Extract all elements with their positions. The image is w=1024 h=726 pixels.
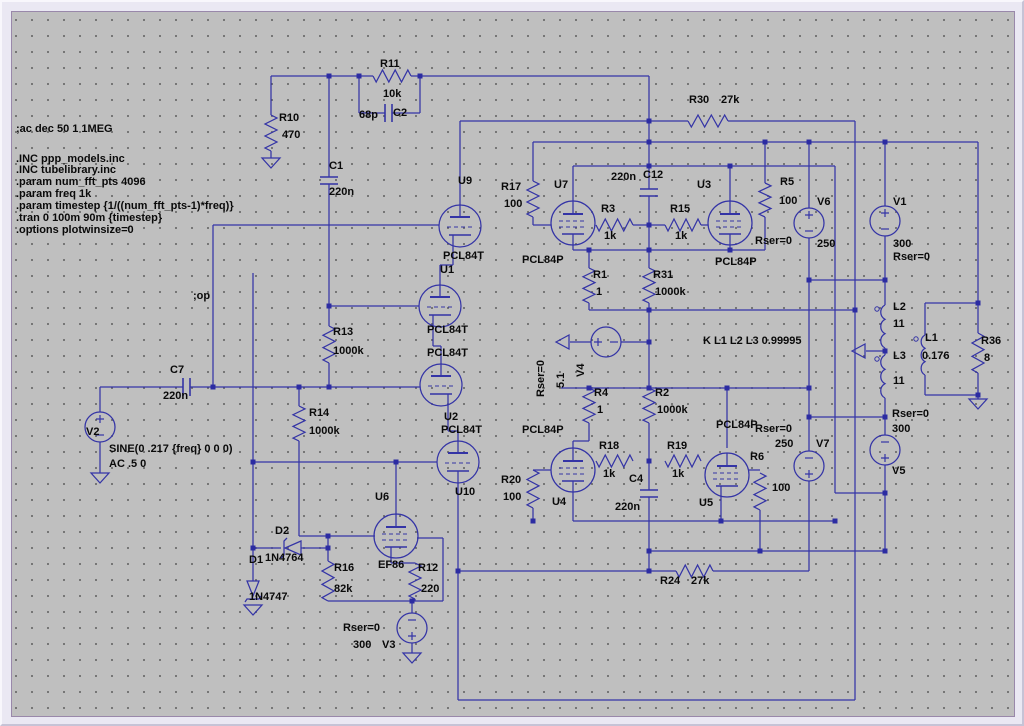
spice-directive-inc-tubelibrary[interactable]: .INC tubelibrary.inc <box>16 165 116 176</box>
component-label-L2[interactable]: L2 <box>893 302 906 313</box>
component-label-R14[interactable]: R14 <box>309 408 329 419</box>
component-label-U2-type[interactable]: PCL84T <box>427 348 468 359</box>
voltage-source-V4[interactable] <box>591 327 621 357</box>
component-label-V2-ac[interactable]: AC .5 0 <box>109 459 146 470</box>
component-label-V7-val[interactable]: 250 <box>775 439 793 450</box>
spice-directive-param-num-fft[interactable]: .param num_fft_pts 4096 <box>16 177 146 188</box>
junction-dot[interactable] <box>327 74 332 79</box>
ground-symbol[interactable] <box>969 399 987 409</box>
source-part <box>594 338 602 346</box>
voltage-source-V3[interactable] <box>397 613 427 643</box>
junction-dot[interactable] <box>883 549 888 554</box>
component-label-R11[interactable]: R11 <box>380 59 400 70</box>
junction-dot[interactable] <box>531 519 536 524</box>
source-part <box>408 632 416 640</box>
app-window: ;ac dec 50 1 1MEG.INC ppp_models.inc.INC… <box>0 0 1024 726</box>
junction-dot[interactable] <box>976 393 981 398</box>
tube-U9[interactable] <box>439 205 481 247</box>
component-label-U3-type[interactable]: PCL84P <box>715 257 757 268</box>
resistor-R17[interactable] <box>527 181 539 217</box>
component-label-R14-val[interactable]: 1000k <box>309 426 340 437</box>
component-label-V6-rser[interactable]: Rser=0 <box>755 236 792 247</box>
component-label-V4[interactable]: V4 <box>576 364 587 377</box>
capacitor-C12[interactable] <box>640 189 658 196</box>
junction-dot[interactable] <box>763 140 768 145</box>
component-label-R1-val[interactable]: 1 <box>596 287 602 298</box>
component-label-V2[interactable]: V2 <box>86 427 99 438</box>
spice-directive-param-timestep[interactable]: .param timestep {1/((num_fft_pts-1)*freq… <box>16 201 234 212</box>
component-label-U6[interactable]: U6 <box>375 492 389 503</box>
component-label-C1-val[interactable]: 220n <box>329 187 354 198</box>
junction-dot[interactable] <box>456 569 461 574</box>
component-label-V3[interactable]: V3 <box>382 640 395 651</box>
junction-dot[interactable] <box>647 164 652 169</box>
junction-dot[interactable] <box>647 459 652 464</box>
junction-dot[interactable] <box>647 119 652 124</box>
junction-dot[interactable] <box>728 248 733 253</box>
component-label-V5-val[interactable]: 300 <box>892 424 910 435</box>
junction-dot[interactable] <box>725 386 730 391</box>
component-label-U5[interactable]: U5 <box>699 498 713 509</box>
junction-dot[interactable] <box>833 519 838 524</box>
ground-symbol[interactable] <box>91 473 109 483</box>
component-label-U7[interactable]: U7 <box>554 180 568 191</box>
spice-directive-ac-analysis[interactable]: ;ac dec 50 1 1MEG <box>16 124 113 135</box>
component-label-U10[interactable]: U10 <box>455 487 475 498</box>
junction-dot[interactable] <box>327 385 332 390</box>
junction-dot[interactable] <box>976 301 981 306</box>
component-label-V6[interactable]: V6 <box>817 197 830 208</box>
phase-dot-L1[interactable] <box>914 337 918 341</box>
component-label-R11-val[interactable]: 10k <box>383 89 401 100</box>
phase-dot-L3[interactable] <box>875 357 879 361</box>
arrow-port[interactable] <box>556 335 569 349</box>
component-label-R18-val[interactable]: 1k <box>603 469 615 480</box>
junction-dot[interactable] <box>883 278 888 283</box>
resistor-R10[interactable] <box>265 115 277 151</box>
resistor-R19[interactable] <box>665 455 701 467</box>
component-label-R18[interactable]: R18 <box>599 441 619 452</box>
component-label-U4[interactable]: U4 <box>552 497 566 508</box>
source-part <box>805 470 813 478</box>
component-label-R4[interactable]: R4 <box>594 388 608 399</box>
component-label-R6-val[interactable]: 100 <box>772 483 790 494</box>
component-label-U9[interactable]: U9 <box>458 176 472 187</box>
junction-dot[interactable] <box>647 223 652 228</box>
junction-dot[interactable] <box>807 140 812 145</box>
component-label-R12[interactable]: R12 <box>418 563 438 574</box>
junction-dot[interactable] <box>327 304 332 309</box>
component-label-U7-type[interactable]: PCL84P <box>522 255 564 266</box>
component-label-C1[interactable]: C1 <box>329 161 343 172</box>
tube-U2[interactable] <box>420 364 462 406</box>
component-label-R17[interactable]: R17 <box>501 182 521 193</box>
component-label-C12[interactable]: C12 <box>643 170 663 181</box>
resistor-R30[interactable] <box>688 115 728 127</box>
component-label-R13-val[interactable]: 1000k <box>333 346 364 357</box>
component-label-R5-val[interactable]: 100 <box>779 196 797 207</box>
component-label-C12-val[interactable]: 220n <box>611 172 636 183</box>
component-label-V4-val[interactable]: 5.1 <box>556 373 567 388</box>
component-label-R3[interactable]: R3 <box>601 204 615 215</box>
component-label-R12-val[interactable]: 220 <box>421 584 439 595</box>
junction-dot[interactable] <box>326 546 331 551</box>
junction-dot[interactable] <box>883 140 888 145</box>
component-label-V4-rser[interactable]: Rser=0 <box>536 360 547 397</box>
junction-dot[interactable] <box>728 164 733 169</box>
component-label-L1-val[interactable]: 0.176 <box>922 351 950 362</box>
resistor-R14[interactable] <box>293 406 305 441</box>
junction-dot[interactable] <box>807 415 812 420</box>
component-label-U1-type[interactable]: PCL84T <box>427 325 468 336</box>
resistor-R11[interactable] <box>373 70 411 82</box>
component-label-R10-val[interactable]: 470 <box>282 130 300 141</box>
component-label-R30-val[interactable]: 27k <box>721 95 739 106</box>
component-label-R15-val[interactable]: 1k <box>675 231 687 242</box>
tube-U10[interactable] <box>437 441 479 483</box>
component-label-C4-val[interactable]: 220n <box>615 502 640 513</box>
junction-dot[interactable] <box>587 386 592 391</box>
resistor-R5[interactable] <box>759 183 771 217</box>
component-label-R15[interactable]: R15 <box>670 204 690 215</box>
junction-dot[interactable] <box>251 460 256 465</box>
voltage-source-V5[interactable] <box>870 435 900 465</box>
junction-dot[interactable] <box>647 386 652 391</box>
source-part <box>96 415 104 423</box>
junction-dot[interactable] <box>357 74 362 79</box>
component-label-D2-val[interactable]: 1N4764 <box>265 553 304 564</box>
component-label-R31-val[interactable]: 1000k <box>655 287 686 298</box>
component-label-R2-val[interactable]: 1000k <box>657 405 688 416</box>
component-label-R3-val[interactable]: 1k <box>604 231 616 242</box>
tube-U3[interactable] <box>708 201 752 245</box>
component-label-D1-val[interactable]: 1N4747 <box>249 592 288 603</box>
resistor-R16[interactable] <box>322 561 334 601</box>
component-label-V7-rser[interactable]: Rser=0 <box>755 424 792 435</box>
ground-symbol[interactable] <box>403 653 421 663</box>
component-label-U9-type[interactable]: PCL84T <box>443 251 484 262</box>
component-label-R36-val[interactable]: 8 <box>984 353 990 364</box>
component-label-R13[interactable]: R13 <box>333 327 353 338</box>
component-label-U2[interactable]: U2 <box>444 412 458 423</box>
component-label-R17-val[interactable]: 100 <box>504 199 522 210</box>
component-label-R20-val[interactable]: 100 <box>503 492 521 503</box>
component-label-L2-val[interactable]: 11 <box>893 319 905 330</box>
component-label-U3[interactable]: U3 <box>697 180 711 191</box>
component-label-R19[interactable]: R19 <box>667 441 687 452</box>
schematic-drawing <box>12 12 1016 718</box>
component-label-R36[interactable]: R36 <box>981 336 1001 347</box>
component-label-U6-type[interactable]: EF86 <box>378 560 404 571</box>
junction-dot[interactable] <box>883 415 888 420</box>
junction-dot[interactable] <box>418 74 423 79</box>
component-label-R5[interactable]: R5 <box>780 177 794 188</box>
voltage-source-V1[interactable] <box>870 206 900 236</box>
junction-dot[interactable] <box>719 519 724 524</box>
junction-dot[interactable] <box>297 385 302 390</box>
junction-dot[interactable] <box>587 248 592 253</box>
junction-dot[interactable] <box>807 278 812 283</box>
junction-dot[interactable] <box>647 569 652 574</box>
junction-dot[interactable] <box>647 308 652 313</box>
component-label-R20[interactable]: R20 <box>501 475 521 486</box>
junction-dot[interactable] <box>758 549 763 554</box>
junction-dot[interactable] <box>883 491 888 496</box>
component-label-L3[interactable]: L3 <box>893 351 906 362</box>
arrow-port[interactable] <box>852 344 865 358</box>
junction-dot[interactable] <box>410 599 415 604</box>
component-label-C2[interactable]: C2 <box>393 108 407 119</box>
component-label-U1[interactable]: U1 <box>440 265 454 276</box>
spice-directive-tran[interactable]: .tran 0 100m 90m {timestep} <box>16 213 162 224</box>
component-label-R4-val[interactable]: 1 <box>597 405 603 416</box>
capacitor-C1[interactable] <box>320 177 338 184</box>
component-label-V1[interactable]: V1 <box>893 197 906 208</box>
component-label-V5[interactable]: V5 <box>892 466 905 477</box>
component-label-L3-val[interactable]: 11 <box>893 376 905 387</box>
component-label-U10-type[interactable]: PCL84T <box>441 425 482 436</box>
source-part <box>881 454 889 462</box>
junction-dot[interactable] <box>807 386 812 391</box>
resistor-R18[interactable] <box>596 455 633 467</box>
junction-dot[interactable] <box>211 385 216 390</box>
spice-directive-param-freq[interactable]: .param freq 1k <box>16 189 91 200</box>
component-label-R31[interactable]: R31 <box>653 270 673 281</box>
component-label-R16-val[interactable]: 82k <box>334 584 352 595</box>
component-label-R2[interactable]: R2 <box>655 388 669 399</box>
component-label-U5-type[interactable]: PCL84P <box>716 420 758 431</box>
tube-U7[interactable] <box>551 201 595 245</box>
source-part <box>805 211 813 219</box>
component-label-V3-val[interactable]: 300 <box>353 640 371 651</box>
component-label-K-stmt[interactable]: K L1 L2 L3 0.99995 <box>703 336 801 347</box>
component-label-V7[interactable]: V7 <box>816 439 829 450</box>
junction-dot[interactable] <box>251 546 256 551</box>
component-label-V6-val[interactable]: 250 <box>817 239 835 250</box>
resistor-R6[interactable] <box>754 473 766 510</box>
ground-symbol[interactable] <box>244 605 262 615</box>
resistor-R20[interactable] <box>527 470 539 508</box>
component-label-R30[interactable]: R30 <box>689 95 709 106</box>
source-part <box>881 209 889 217</box>
inductor-L2[interactable] <box>881 305 885 348</box>
component-label-R24[interactable]: R24 <box>660 576 680 587</box>
inductor-L3[interactable] <box>881 355 885 398</box>
component-label-R6[interactable]: R6 <box>750 452 764 463</box>
component-label-C2-val[interactable]: 68p <box>359 110 378 121</box>
junction-dot[interactable] <box>853 308 858 313</box>
junction-dot[interactable] <box>647 248 652 253</box>
component-label-V1-val[interactable]: 300 <box>893 239 911 250</box>
junction-dot[interactable] <box>647 549 652 554</box>
component-label-R1[interactable]: R1 <box>593 270 607 281</box>
junction-dot[interactable] <box>394 460 399 465</box>
tube-U4[interactable] <box>551 448 595 492</box>
component-label-C7[interactable]: C7 <box>170 365 184 376</box>
junction-dot[interactable] <box>647 140 652 145</box>
ground-symbol[interactable] <box>262 158 280 168</box>
capacitor-C2[interactable] <box>385 104 392 122</box>
component-label-V5-rser[interactable]: Rser=0 <box>892 409 929 420</box>
spice-directive-options-plotwinsize[interactable]: .options plotwinsize=0 <box>16 225 134 236</box>
component-label-D2[interactable]: D2 <box>275 526 289 537</box>
component-label-R24-val[interactable]: 27k <box>691 576 709 587</box>
component-label-L1[interactable]: L1 <box>925 333 938 344</box>
resistor-R2[interactable] <box>643 388 655 423</box>
voltage-source-V6[interactable] <box>794 208 824 238</box>
schematic-canvas[interactable]: ;ac dec 50 1 1MEG.INC ppp_models.inc.INC… <box>11 11 1015 717</box>
component-label-V3-rser[interactable]: Rser=0 <box>343 623 380 634</box>
component-label-V2-sine[interactable]: SINE(0 .217 {freq} 0 0 0) <box>109 444 233 455</box>
tube-U5[interactable] <box>705 453 749 497</box>
component-label-C4[interactable]: C4 <box>629 474 643 485</box>
component-label-C7-val[interactable]: 220n <box>163 391 188 402</box>
component-label-V1-rser[interactable]: Rser=0 <box>893 252 930 263</box>
component-label-R16[interactable]: R16 <box>334 563 354 574</box>
component-label-R19-val[interactable]: 1k <box>672 469 684 480</box>
junction-dot[interactable] <box>326 534 331 539</box>
component-label-U4-type[interactable]: PCL84P <box>522 425 564 436</box>
phase-dot-L2[interactable] <box>875 307 879 311</box>
component-label-D1[interactable]: D1 <box>249 555 263 566</box>
spice-directive-op[interactable]: ;op <box>193 291 210 302</box>
tube-U1[interactable] <box>419 285 461 327</box>
junction-dot[interactable] <box>883 349 888 354</box>
component-label-R10[interactable]: R10 <box>279 113 299 124</box>
voltage-source-V7[interactable] <box>794 451 824 481</box>
tube-U6[interactable] <box>374 514 418 558</box>
capacitor-C4[interactable] <box>640 490 658 497</box>
junction-dot[interactable] <box>647 340 652 345</box>
